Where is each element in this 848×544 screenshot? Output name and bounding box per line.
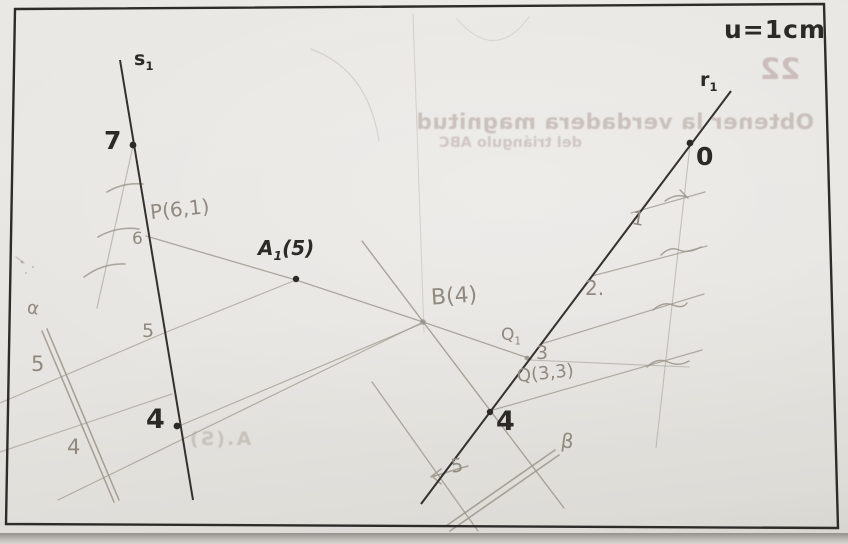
stray-dot-3: [25, 272, 27, 274]
bleed-text-line1: Obtener la verdadera magnitud: [420, 112, 814, 134]
pencil-left-tick-1: [107, 184, 143, 192]
label-A1-5: A1(5): [258, 238, 314, 258]
point-s1-4-dot: [174, 423, 181, 430]
bleed-point-note: A.(S): [188, 430, 251, 449]
pencil-right-tick-3: [653, 303, 687, 310]
photo-bottom-edge: [0, 533, 848, 544]
label-Q1: Q1: [501, 327, 521, 344]
label-6: 6: [132, 231, 143, 248]
stray-dot-1: [21, 261, 24, 264]
label-5-r1: 5: [450, 456, 465, 476]
point-A1-dot: [293, 276, 299, 282]
label-B-4: B(4): [430, 284, 478, 309]
label-7: 7: [104, 128, 121, 153]
label-4-r1: 4: [496, 408, 515, 435]
stray-dot-2: [32, 266, 34, 268]
pencil-faint-vertical-through-B: [413, 14, 424, 332]
alpha-fold-line-2: [47, 329, 119, 500]
pencil-grad-line-3: [541, 294, 704, 344]
label-5-left: 5: [31, 354, 44, 375]
bleed-exercise-number: 22: [760, 55, 800, 84]
point-7-dot: [130, 142, 137, 149]
pencil-right-tick-2: [661, 247, 701, 255]
point-r1-4-dot: [487, 409, 493, 415]
label-0: 0: [696, 144, 713, 169]
pencil-line-through-r1-5: [372, 382, 478, 531]
pencil-faint-stroke-top: [457, 17, 529, 41]
s1-label: s1: [134, 50, 154, 69]
pencil-left-ruler-line: [97, 146, 133, 308]
r1-label: r1: [700, 71, 718, 90]
pencil-line-s1-4-to-B: [179, 324, 421, 426]
label-4-left: 4: [67, 437, 80, 458]
pencil-right-ruler-line: [656, 145, 690, 448]
drawing-canvas: [0, 0, 848, 544]
photographed-geometry-worksheet: u=1cm s1 r1 7 0 A1(5) 4 4 P(6,1) 6 5 5 4…: [0, 0, 848, 544]
label-3: 3: [536, 344, 548, 363]
point-0-dot: [687, 140, 694, 147]
unit-note: u=1cm: [724, 17, 826, 42]
bleed-text-line2: del triángulo ABC: [428, 136, 582, 151]
alpha-fold-line-1: [42, 331, 114, 502]
pencil-faint-arc-upper: [311, 49, 379, 141]
point-B-dot: [420, 319, 426, 325]
pencil-line-B-to-bottom-left: [58, 322, 423, 500]
label-5-s1: 5: [142, 322, 154, 341]
label-P-6-1: P(6,1): [149, 196, 210, 222]
label-4-s1: 4: [146, 406, 165, 433]
label-2: 2.: [585, 278, 604, 298]
